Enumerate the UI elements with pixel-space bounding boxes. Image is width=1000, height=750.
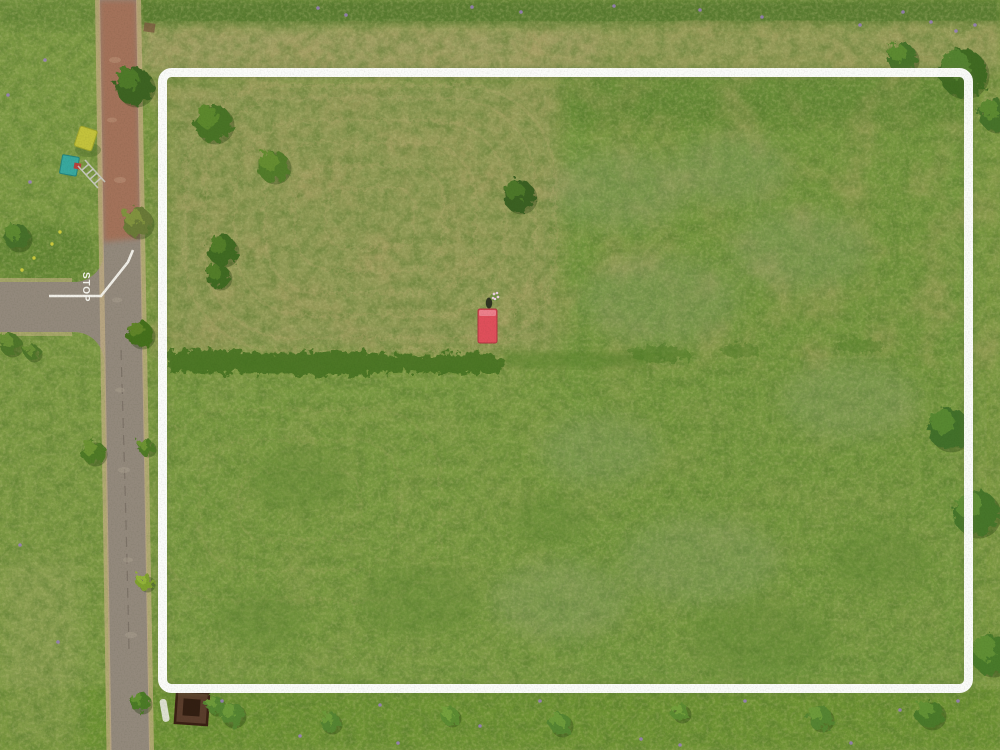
aerial-scene: STOP	[0, 0, 1000, 750]
photo-grain	[0, 0, 1000, 750]
aerial-photo: STOP	[0, 0, 1000, 750]
